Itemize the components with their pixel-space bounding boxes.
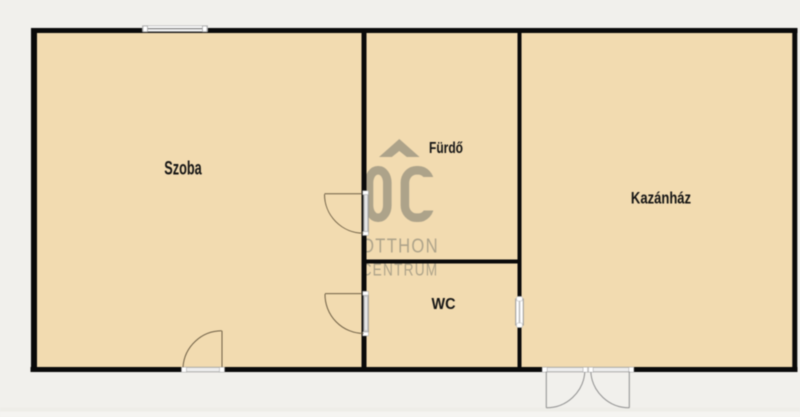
svg-text:OTTHON: OTTHON (361, 234, 439, 257)
svg-text:Fürdő: Fürdő (429, 140, 463, 157)
svg-text:Kazánház: Kazánház (631, 190, 691, 208)
svg-text:Szoba: Szoba (164, 158, 202, 179)
svg-text:WC: WC (432, 296, 456, 312)
svg-text:CENTRUM: CENTRUM (362, 261, 439, 280)
